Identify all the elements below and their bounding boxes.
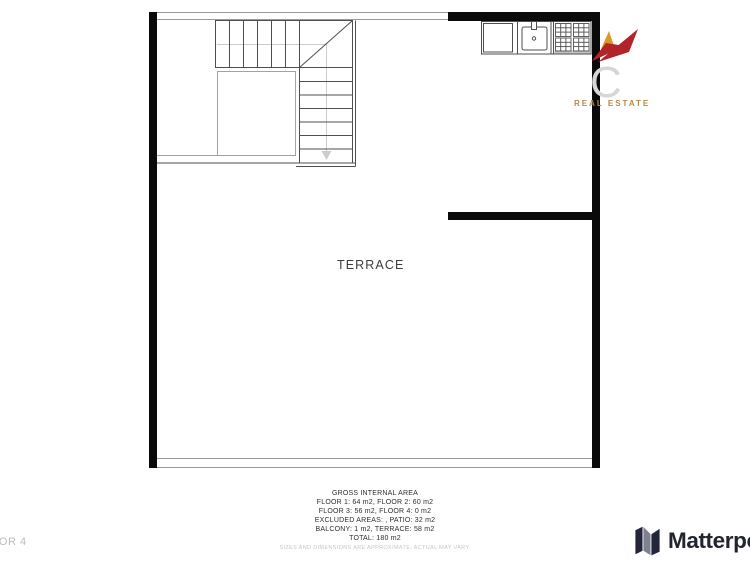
terrace-boundary-lines bbox=[149, 13, 600, 468]
wall-left bbox=[149, 12, 157, 468]
matterport-wordmark: Matterport bbox=[668, 528, 750, 554]
sink bbox=[518, 22, 552, 55]
area-summary-line: FLOOR 3: 56 m2, FLOOR 4: 0 m2 bbox=[0, 507, 750, 516]
brand-logo: C REAL ESTATE bbox=[570, 18, 750, 113]
area-summary-line: EXCLUDED AREAS: , PATIO: 32 m2 bbox=[0, 516, 750, 525]
stair-direction-arrow bbox=[217, 45, 332, 161]
room-label-terrace: TERRACE bbox=[337, 258, 404, 272]
wall-interior bbox=[448, 212, 596, 220]
brand-tagline: REAL ESTATE bbox=[574, 99, 650, 108]
matterport-icon bbox=[634, 526, 661, 556]
cabinet bbox=[484, 24, 513, 53]
staircase bbox=[157, 21, 356, 167]
stair-void-outline bbox=[157, 72, 296, 156]
brand-initial: C bbox=[590, 62, 622, 104]
floorplan-page: C REAL ESTATE TERRACE FLOOR 4 GROSS INTE… bbox=[0, 0, 750, 562]
area-summary-title: GROSS INTERNAL AREA bbox=[0, 489, 750, 498]
matterport-logo: Matterport bbox=[634, 525, 750, 557]
area-summary-line: FLOOR 1: 64 m2, FLOOR 2: 60 m2 bbox=[0, 498, 750, 507]
walls bbox=[149, 12, 600, 468]
